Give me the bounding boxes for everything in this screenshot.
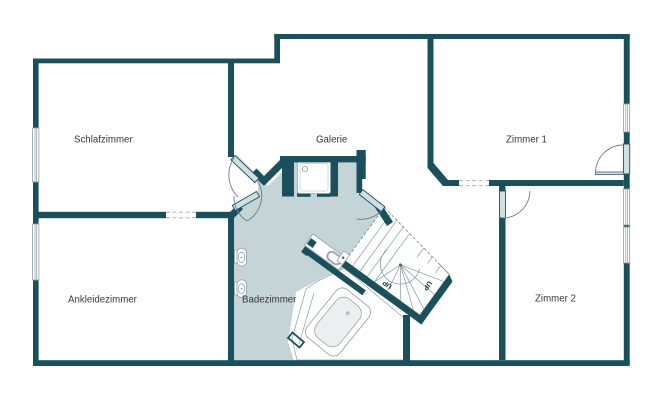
svg-text:Schlafzimmer: Schlafzimmer xyxy=(74,135,133,146)
svg-text:Zimmer 1: Zimmer 1 xyxy=(506,135,547,146)
svg-text:Zimmer 2: Zimmer 2 xyxy=(535,294,576,305)
svg-text:Badezimmer: Badezimmer xyxy=(242,295,297,306)
svg-text:Ankleidezimmer: Ankleidezimmer xyxy=(68,295,138,306)
svg-text:Galerie: Galerie xyxy=(316,135,347,146)
